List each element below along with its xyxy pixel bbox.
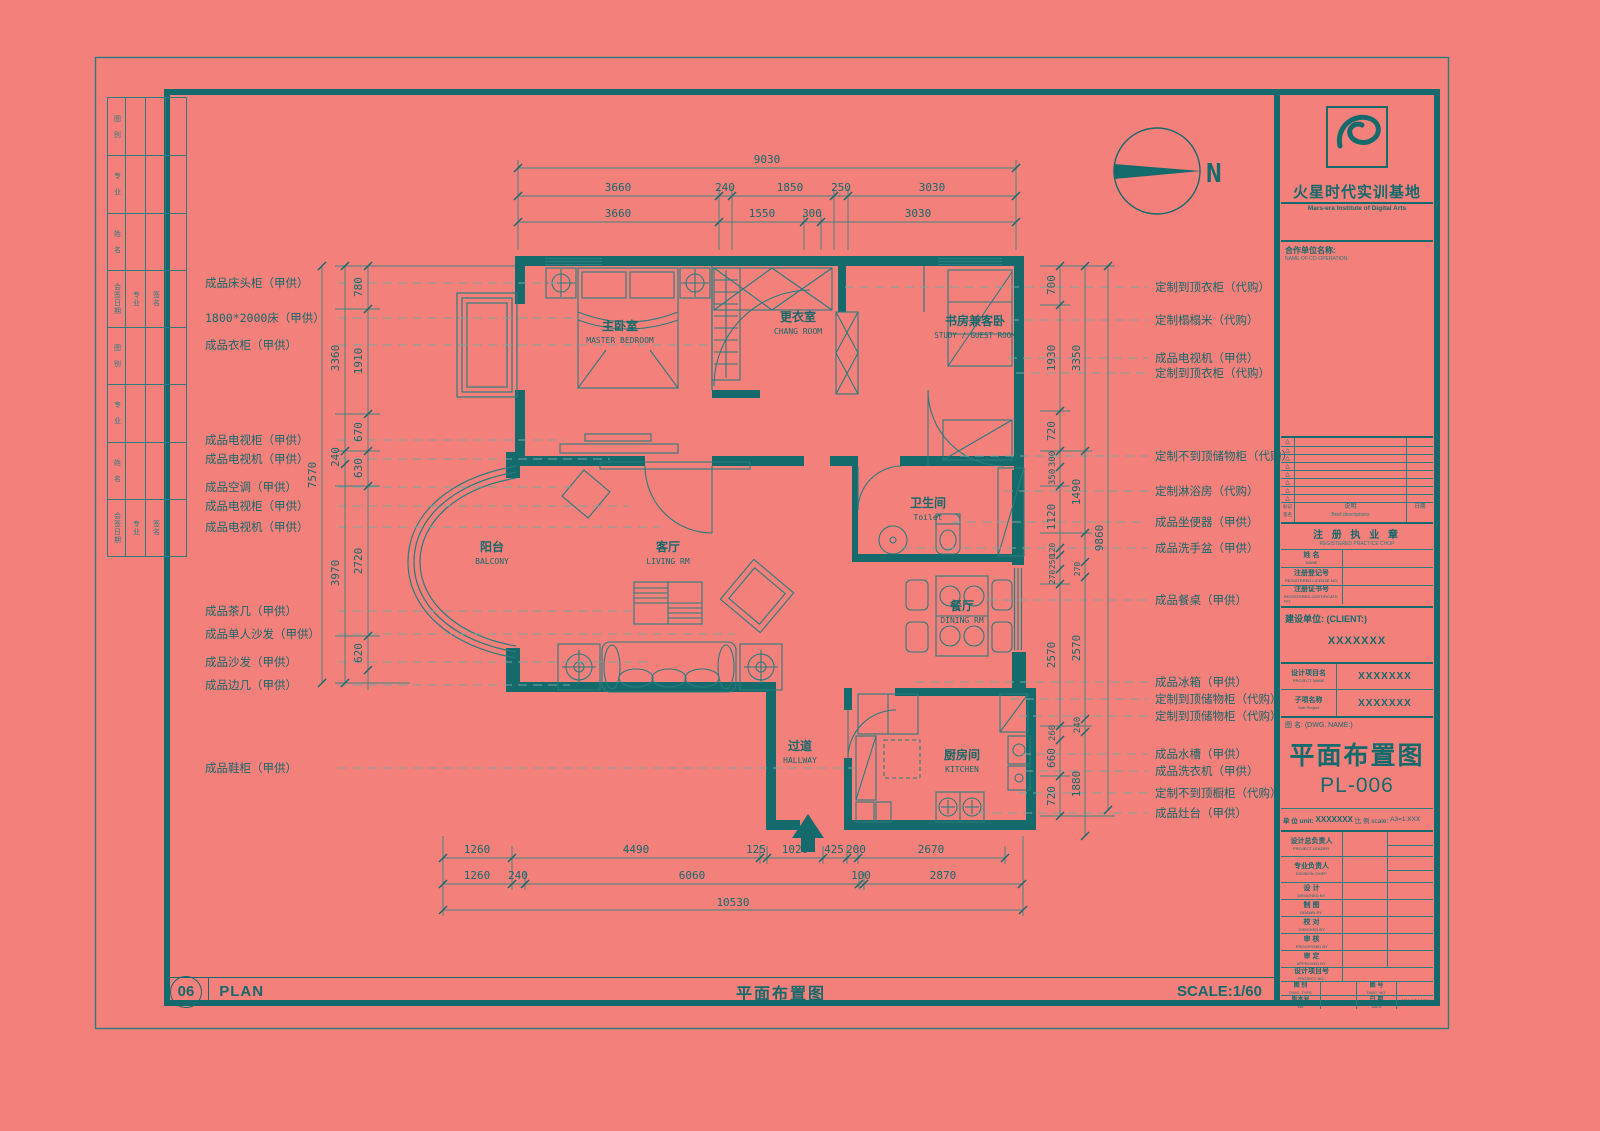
dim: 6060 <box>679 869 706 882</box>
revision-triangle-icon: △ <box>1281 438 1295 446</box>
rev-footer-mid-en: Brief descriptions <box>1331 512 1369 518</box>
callout-left: 成品电视机（甲供） <box>205 452 309 466</box>
room-chang-cn: 更衣室 <box>780 309 816 324</box>
row-checked-en: CHECKED BY <box>1298 927 1324 932</box>
dim: 1930 <box>1045 345 1058 372</box>
logo-mars-icon <box>1326 106 1388 168</box>
dim: 240 <box>329 447 342 467</box>
room-dining-cn: 餐厅 <box>950 598 974 613</box>
callout-right: 成品水槽（甲供） <box>1155 747 1247 761</box>
row-division-cn: 专业负责人 <box>1294 863 1329 871</box>
chop-title-en: REGISTERED PRACTICE CHOP <box>1281 541 1433 547</box>
chop-cert-en: REGISTERED CERTIFICATE NO. <box>1284 595 1339 604</box>
chop-cert-cn: 注册证书号 <box>1294 586 1329 594</box>
revision-triangle-icon: △ <box>1281 479 1295 487</box>
row-projectno-cn: 设计项目号 <box>1294 968 1329 976</box>
callout-left: 成品电视机（甲供） <box>205 520 309 534</box>
dim: 620 <box>352 643 365 663</box>
sign-cell: 专业 <box>126 500 146 556</box>
room-kitchen-cn: 厨房间 <box>944 747 980 762</box>
dim: 300 <box>1048 451 1058 467</box>
dim: 1910 <box>352 348 365 375</box>
dim: 2670 <box>918 843 945 856</box>
dimension-lines <box>322 160 1115 916</box>
row-approved-en: APPROVED BY <box>1297 961 1326 966</box>
room-balcony-cn: 阳台 <box>480 539 504 554</box>
room-hallway-en: HALLWAY <box>783 756 817 765</box>
room-study-en: STUDY / GUEST ROOM <box>934 331 1016 340</box>
dwgtype-cn: 图 别 <box>1294 982 1308 990</box>
row-processed-en: PROCESSED BY <box>1296 944 1328 949</box>
chop-license-en: REGISTERED LICENSE NO. <box>1285 578 1338 583</box>
client-value: XXXXXXX <box>1285 635 1429 647</box>
dim: 3360 <box>329 345 342 372</box>
dim: 1020 <box>782 843 809 856</box>
subproject-label-en: Sub Project <box>1298 705 1319 710</box>
subproject-label-cn: 子项名称 <box>1295 697 1323 705</box>
dim: 720 <box>1045 786 1058 806</box>
callout-right: 成品冰箱（甲供） <box>1155 675 1247 689</box>
scale-value: A3=1:XXX <box>1390 816 1420 823</box>
dim: 270 <box>1073 562 1082 577</box>
dim: 250 <box>1048 555 1057 570</box>
callout-right: 成品洗手盆（甲供） <box>1155 541 1259 555</box>
dim: 250 <box>831 181 851 194</box>
room-hallway-cn: 过道 <box>788 738 812 753</box>
unit-value: XXXXXXX <box>1316 815 1353 824</box>
footer-scale: SCALE:1/60 <box>1177 983 1262 1000</box>
room-toilet-cn: 卫生间 <box>910 495 946 510</box>
version-cn: 版本号 <box>1291 996 1309 1004</box>
dim: 2870 <box>930 869 957 882</box>
callout-left: 成品单人沙发（甲供） <box>205 627 320 641</box>
dim: 270 <box>1048 570 1057 585</box>
date-cn: 日 期 <box>1370 996 1384 1004</box>
dim: 200 <box>846 843 866 856</box>
dim: 660 <box>1045 748 1058 768</box>
dim: 125 <box>746 843 766 856</box>
footer-plan-label: PLAN <box>219 983 264 1000</box>
dim: 425 <box>824 843 844 856</box>
footer-title: 平面布置图 <box>736 980 826 1004</box>
callout-right: 定制到顶储物柜（代购） <box>1155 692 1282 706</box>
dim: 260 <box>1048 725 1058 741</box>
dwg-name-label: 图 名: (DWG. NAME:) <box>1285 720 1429 730</box>
room-dining-en: DINING RM <box>940 616 984 625</box>
callout-right: 定制榻榻米（代购） <box>1155 313 1259 327</box>
dim: 9860 <box>1093 525 1106 552</box>
revision-triangle-icon: △ <box>1281 487 1295 495</box>
room-toilet-en: Toilet <box>914 513 943 522</box>
dim: 350 <box>1048 469 1058 485</box>
scale-label: 比 例 scale: <box>1355 815 1389 825</box>
row-designed-en: DESIGNED BY <box>1298 893 1326 898</box>
coop-label-en: NAME OF CO-OPERATION: <box>1285 256 1429 262</box>
rev-footer-left: 标记 签名 <box>1281 503 1295 522</box>
dim-bottom-overall: 10530 <box>716 896 749 909</box>
callout-right: 成品坐便器（甲供） <box>1155 515 1259 529</box>
sign-cell: 专业 <box>126 271 146 327</box>
north-arrow-icon: N <box>1114 128 1222 214</box>
room-balcony-en: BALCONY <box>475 557 509 566</box>
callout-right: 成品餐桌（甲供） <box>1155 593 1247 607</box>
dim: 240 <box>715 181 735 194</box>
coop-label: 合作单位名称: <box>1285 245 1429 256</box>
callout-left: 1800*2000床（甲供） <box>205 311 325 325</box>
revision-triangle-icon: △ <box>1281 471 1295 479</box>
subproject-value: XXXXXXX <box>1337 690 1433 716</box>
callout-right: 定制到顶衣柜（代购） <box>1155 366 1270 380</box>
dim-top-overall: 9030 <box>754 153 781 166</box>
callout-right: 定制到顶储物柜（代购） <box>1155 709 1282 723</box>
callout-right: 成品洗衣机（甲供） <box>1155 764 1259 778</box>
dim: 630 <box>352 458 365 478</box>
dim: 100 <box>851 869 871 882</box>
chop-name-en: NAME <box>1306 560 1318 565</box>
sign-cell: 签名 <box>146 271 166 327</box>
revision-triangle-icon: △ <box>1281 463 1295 471</box>
row-leader-cn: 设计总负责人 <box>1291 838 1333 846</box>
dim: 3350 <box>1070 345 1083 372</box>
dim: 1260 <box>464 843 491 856</box>
row-processed-cn: 审 核 <box>1304 936 1320 944</box>
sheet-number-badge: 06 <box>170 976 202 1008</box>
sign-cell: 专 业 <box>108 385 126 441</box>
sign-cell: 姓 名 <box>108 214 126 270</box>
dim: 240 <box>1073 717 1083 733</box>
dim: 700 <box>1045 275 1058 295</box>
dim: 1120 <box>1045 504 1058 531</box>
project-label-cn: 设计项目名 <box>1291 670 1326 678</box>
room-living-cn: 客厅 <box>655 539 680 554</box>
callout-left: 成品电视柜（甲供） <box>205 433 309 447</box>
row-division-en: DIVISION CHIEF <box>1296 871 1327 876</box>
title-block: 火星时代实训基地 Mars-era Institute of Digital A… <box>1281 92 1433 1003</box>
dim: 720 <box>1045 421 1058 441</box>
dim: 2570 <box>1070 635 1083 662</box>
sign-cell: 专 业 <box>108 156 126 212</box>
callout-right: 定制淋浴房（代购） <box>1155 484 1259 498</box>
row-checked-cn: 校 对 <box>1304 919 1320 927</box>
dim: 1880 <box>1070 771 1083 798</box>
sheet-footer: 06 PLAN 平面布置图 SCALE:1/60 <box>166 977 1274 1005</box>
row-drawn-en: DRAWN BY <box>1301 910 1323 915</box>
drawing-sheet: N <box>0 0 1600 1131</box>
row-drawn-cn: 制 图 <box>1304 902 1320 910</box>
dim: 1260 <box>464 869 491 882</box>
dim: 1550 <box>749 207 776 220</box>
callout-left: 成品边几（甲供） <box>205 678 297 692</box>
callout-left: 成品衣柜（甲供） <box>205 338 297 352</box>
project-value: XXXXXXX <box>1337 664 1433 689</box>
row-approved-cn: 审 定 <box>1304 953 1320 961</box>
countersignature-table: 图 别 专 业 姓 名 会签日期专业签名 图 别 专 业 姓 名 会签日期专业签… <box>107 97 187 557</box>
version-en: Ver. <box>1297 1004 1304 1009</box>
revision-triangle-icon: △ <box>1281 495 1295 503</box>
dim: 4490 <box>623 843 650 856</box>
callout-right: 成品电视机（甲供） <box>1155 351 1259 365</box>
sign-cell: 会签日期 <box>108 271 126 327</box>
date-value: XX XX XX <box>1397 996 1433 1009</box>
logo-brand: 火星时代实训基地 <box>1281 181 1433 204</box>
rev-footer-right: 日期 <box>1407 503 1433 522</box>
dwgno-cn: 图 号 <box>1370 982 1384 990</box>
rev-footer-mid: 说明 <box>1344 504 1356 510</box>
dwg-title: 平面布置图 <box>1285 736 1429 772</box>
dimension-ticks <box>318 164 1112 914</box>
room-study-cn: 书房兼客卧 <box>945 313 1005 328</box>
callout-left: 成品电视柜（甲供） <box>205 499 309 513</box>
sign-cell: 图 别 <box>108 98 126 155</box>
callout-right: 成品灶台（甲供） <box>1155 806 1247 820</box>
footer-divider <box>208 978 209 1005</box>
north-label: N <box>1206 159 1222 189</box>
callout-left: 成品鞋柜（甲供） <box>205 761 297 775</box>
callout-left: 成品床头柜（甲供） <box>205 276 309 290</box>
dim: 3970 <box>329 560 342 587</box>
row-leader-en: PROJECT LEADER <box>1293 846 1329 851</box>
chop-title: 注 册 执 业 章 <box>1281 526 1433 541</box>
dim: 780 <box>352 277 365 297</box>
dim: 300 <box>802 207 822 220</box>
room-living-en: LIVING RM <box>646 557 690 566</box>
dim: 1850 <box>777 181 804 194</box>
sign-cell: 姓 名 <box>108 443 126 499</box>
dim: 1490 <box>1070 479 1083 506</box>
room-labels: 主卧室 MASTER BEDROOM 更衣室 CHANG ROOM 书房兼客卧 … <box>475 309 1016 774</box>
dim: 3660 <box>605 207 632 220</box>
client-label: 建设单位: (CLIENT:) <box>1285 612 1429 625</box>
room-kitchen-en: KITCHEN <box>945 765 979 774</box>
callout-left: 成品沙发（甲供） <box>205 655 297 669</box>
dim: 240 <box>508 869 528 882</box>
logo-brand-en: Mars-era Institute of Digital Arts <box>1281 205 1433 212</box>
dim: 670 <box>352 422 365 442</box>
chop-name-cn: 姓 名 <box>1304 552 1320 560</box>
dim: 3030 <box>905 207 932 220</box>
date-en: DATE <box>1371 1004 1382 1009</box>
chop-license-cn: 注册登记号 <box>1294 570 1329 578</box>
revision-triangle-icon: △ <box>1281 455 1295 463</box>
sign-cell: 签名 <box>146 500 166 556</box>
sign-cell: 图 别 <box>108 328 126 384</box>
dim: 2720 <box>352 548 365 575</box>
callout-right: 定制不到顶储物柜（代购） <box>1155 449 1293 463</box>
dim: 3660 <box>605 181 632 194</box>
callout-right: 定制到顶衣柜（代购） <box>1155 280 1270 294</box>
callout-right: 定制不到顶橱柜（代购） <box>1155 786 1282 800</box>
dim: 2570 <box>1045 642 1058 669</box>
room-chang-en: CHANG ROOM <box>774 327 822 336</box>
sign-cell: 会签日期 <box>108 500 126 556</box>
callout-left: 成品茶几（甲供） <box>205 604 297 618</box>
row-designed-cn: 设 计 <box>1304 885 1320 893</box>
unit-label: 单 位 unit: <box>1283 815 1314 825</box>
room-master-cn: 主卧室 <box>602 318 638 333</box>
project-label-en: PROJECT NAME <box>1293 678 1325 683</box>
revision-triangle-icon: △ <box>1281 447 1295 455</box>
callout-left: 成品空调（甲供） <box>205 480 297 494</box>
dim: 3030 <box>919 181 946 194</box>
dwg-code: PL-006 <box>1285 774 1429 798</box>
room-master-en: MASTER BEDROOM <box>586 336 654 345</box>
